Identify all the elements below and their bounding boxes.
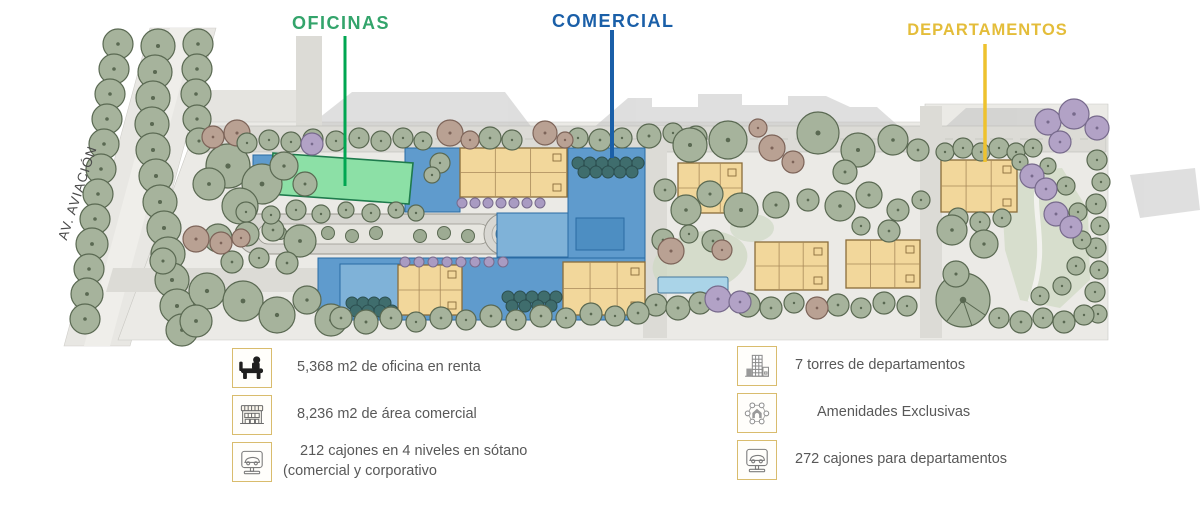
legend-text: 7 torres de departamentos: [795, 356, 965, 376]
legend-item-commercial-area: 8,236 m2 de área comercial: [232, 395, 527, 435]
legend-item-offices: 5,368 m2 de oficina en renta: [232, 348, 527, 388]
master-plan-drawing: [0, 0, 1200, 507]
legend-item-amenities: Amenidades Exclusivas: [737, 393, 1007, 433]
legend-item-parking-departments: 272 cajones para departamentos: [737, 440, 1007, 480]
apartment-towers-icon: [737, 346, 777, 386]
amenities-icon: [737, 393, 777, 433]
parking-car-icon: [232, 442, 272, 482]
label-comercial: COMERCIAL: [552, 11, 672, 32]
legend-item-towers: 7 torres de departamentos: [737, 346, 1007, 386]
legend-text: 212 cajones en 4 niveles en sótano (come…: [283, 442, 527, 481]
parking-car-icon: [737, 440, 777, 480]
legend-text: 5,368 m2 de oficina en renta: [297, 358, 481, 378]
label-oficinas: OFICINAS: [281, 13, 401, 34]
legend-text: Amenidades Exclusivas: [795, 403, 970, 423]
legend-text: 8,236 m2 de área comercial: [297, 405, 477, 425]
office-desk-icon: [232, 348, 272, 388]
legend-left-column: 5,368 m2 de oficina en renta 8,: [232, 348, 527, 482]
legend-item-parking-commercial: 212 cajones en 4 niveles en sótano (come…: [232, 442, 527, 482]
storefront-icon: [232, 395, 272, 435]
site-plan-page: OFICINAS COMERCIAL DEPARTAMENTOS AV. AVI…: [0, 0, 1200, 507]
legend-text: 272 cajones para departamentos: [795, 450, 1007, 470]
label-departamentos: DEPARTAMENTOS: [895, 21, 1080, 40]
legend-right-column: 7 torres de departamentos Amenidades Exc…: [737, 346, 1007, 480]
